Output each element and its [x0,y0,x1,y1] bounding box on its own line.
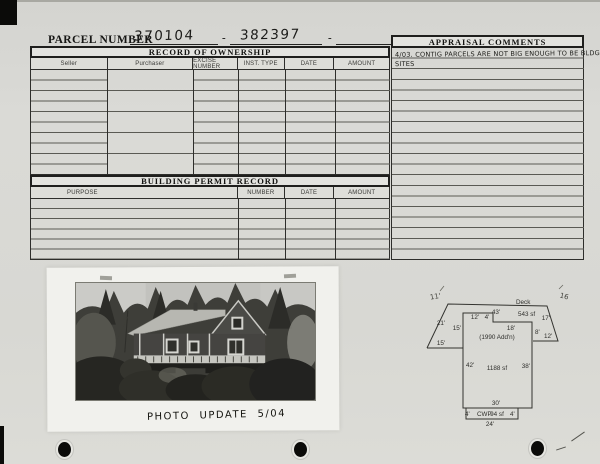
parcel-blank-line-2 [230,44,322,45]
dim-cwp-bottom: 24' [486,421,494,428]
dim-left-42: 42' [466,362,474,369]
scan-left-edge-artifact [0,426,4,464]
pencil-mark-1 [571,432,585,442]
dim-deck-bottom-left: 15' [437,340,445,347]
col-header-inst-type: INST. TYPE [238,58,285,69]
col-header-purpose: PURPOSE [31,187,238,198]
permit-date-column [286,199,336,259]
comments-lines [391,48,584,260]
parcel-number-handwritten-1: 370104 [134,27,195,44]
main-area: 1188 sf [487,365,507,372]
sketch-handwritten-left: 11' [429,292,441,302]
ownership-grid [30,70,390,175]
permit-title: BUILDING PERMIT RECORD [141,176,279,186]
col-header-amount: AMOUNT [334,58,389,69]
parcel-blank-line-3 [336,44,394,45]
comment-note-line-2: SITES [395,60,415,68]
col-header-permit-amount: AMOUNT [334,187,389,198]
building-sketch-drawing: 11' 16 43' Deck 543 sf 21' 15' 15' 12' 4… [408,283,593,428]
ownership-title-band: RECORD OF OWNERSHIP [30,46,390,58]
dim-step-4: 4' [485,314,490,321]
property-photo [75,282,316,401]
hole-punch-left [58,442,71,457]
permit-column-headers: PURPOSE NUMBER DATE AMOUNT [30,187,390,199]
dim-cwp-left: 4' [465,411,470,418]
hole-punch-right [531,441,544,456]
ownership-column-headers: Seller Purchaser EXCISE NUMBER INST. TYP… [30,58,390,70]
ownership-date-column [286,70,336,174]
dim-deck-right-12: 12' [544,333,552,340]
permit-title-band: BUILDING PERMIT RECORD [30,175,390,187]
permit-number-column [239,199,286,259]
col-header-permit-number: NUMBER [238,187,285,198]
deck-area: 543 sf [518,311,535,318]
ownership-title: RECORD OF OWNERSHIP [149,47,272,57]
ownership-purchaser-column [108,70,194,174]
parcel-blank-line-1 [130,44,218,45]
property-photo-image [76,283,315,400]
ownership-excise-column [194,70,239,174]
addn-label: (1990 Add'n) [479,334,515,341]
parcel-dash-1: - [222,32,226,44]
col-header-excise-number: EXCISE NUMBER [193,58,238,69]
dim-deck-top: 43' [492,309,500,316]
col-header-purchaser: Purchaser [108,58,194,69]
dim-cwp-right: 4' [510,411,515,418]
deck-label: Deck [516,299,531,306]
assessor-card-scan: PARCEL NUMBER 370104 - 382397 - RECORD O… [0,0,600,464]
parcel-number-handwritten-2: 382397 [240,26,301,43]
pencil-mark-2 [556,446,566,450]
scan-top-edge [0,0,600,2]
dim-deck-slant-left: 21' [437,320,445,327]
parcel-dash-2: - [328,32,332,44]
comments-title: APPRAISAL COMMENTS [429,37,547,47]
permit-purpose-column [31,199,239,259]
sketch-handwritten-right: 16 [559,292,570,302]
cwp-area: 94 sf [490,411,504,418]
dim-top-18: 18' [507,325,515,332]
col-header-seller: Seller [31,58,108,69]
permit-amount-column [336,199,390,259]
photo-tape-mark-right [284,274,296,279]
dim-deck-slant-right: 17' [542,315,550,322]
ownership-amount-column [336,70,390,174]
scan-corner-artifact [0,0,17,25]
photo-tape-mark-left [100,276,112,280]
comments-title-band: APPRAISAL COMMENTS [391,35,584,48]
permit-grid [30,199,390,260]
ownership-seller-column [31,70,108,174]
col-header-date: DATE [285,58,335,69]
dim-step-12: 12' [471,314,479,321]
dim-left-mid: 15' [453,325,461,332]
col-header-permit-date: DATE [285,187,335,198]
dim-right-38: 38' [522,363,530,370]
ownership-inst-type-column [239,70,286,174]
hole-punch-center [294,442,307,457]
dim-bottom-30: 30' [492,400,500,407]
dim-right-8: 8' [535,329,540,336]
comments-lines-column [392,48,584,259]
building-sketch: 11' 16 43' Deck 543 sf 21' 15' 15' 12' 4… [408,283,593,428]
